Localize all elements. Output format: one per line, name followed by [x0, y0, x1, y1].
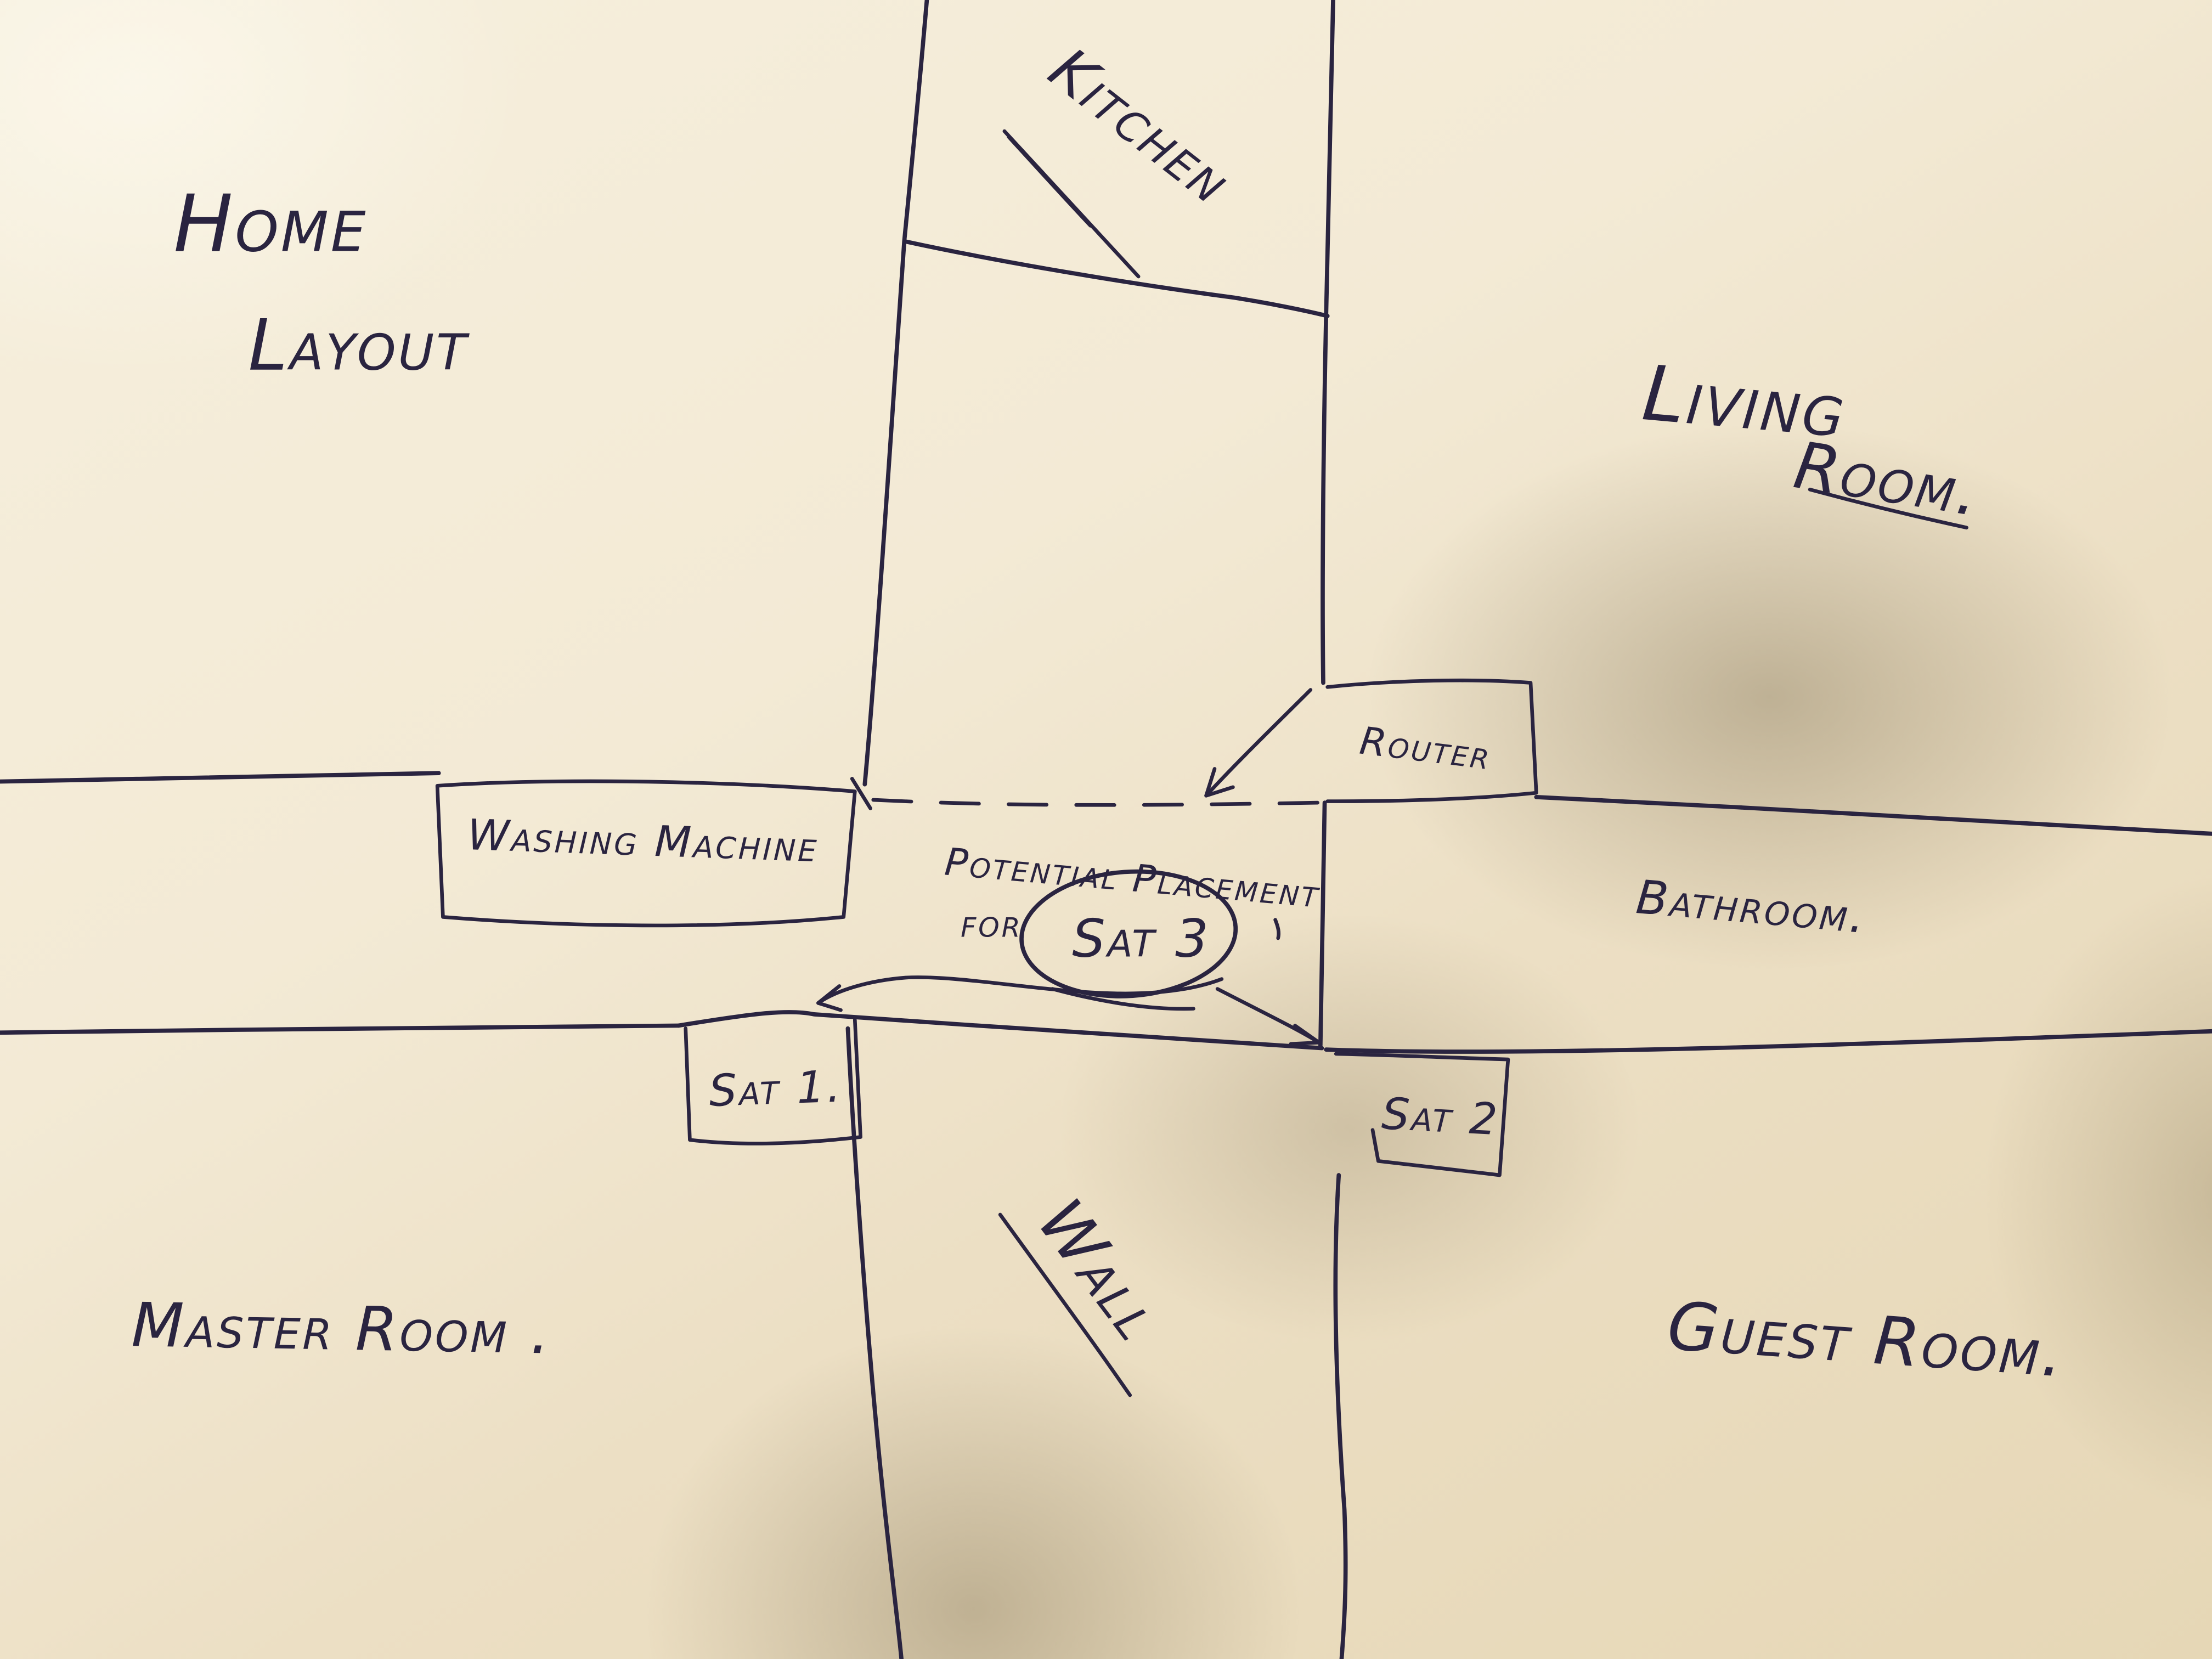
wall-right-middle: [1321, 803, 1325, 1045]
wall-right-lower: [1335, 1175, 1345, 1659]
floor-plan-sketch: Home Layout Kitchen Living Room. Router …: [0, 0, 2212, 1659]
stray-pen-mark: [1276, 920, 1279, 938]
label-sat3: Sat 3: [1072, 909, 1210, 969]
title-layout: Layout: [249, 305, 470, 387]
dashed-partition-line: [873, 800, 1318, 805]
title-home: Home: [173, 178, 368, 270]
paper-photo-background: Home Layout Kitchen Living Room. Router …: [0, 0, 2212, 1659]
wall-right-upper: [1323, 0, 1333, 683]
label-router: Router: [1357, 719, 1494, 779]
kitchen-underline-second-stroke: [1009, 137, 1091, 225]
label-kitchen: Kitchen: [1036, 35, 1244, 218]
arrow-router-to-dashed-wall: [1206, 690, 1311, 795]
wall-left-lower: [848, 1029, 901, 1659]
hallway-top-right-line: [1536, 797, 2212, 834]
wall-kitchen-left: [865, 0, 927, 785]
label-wall: Wall: [1023, 1186, 1177, 1355]
label-master-room: Master Room .: [131, 1290, 552, 1368]
label-living-room-line2: Room.: [1789, 427, 1986, 531]
hallway-top-left-line: [0, 773, 439, 781]
label-washing-machine: Washing Machine: [466, 810, 820, 872]
annotation-for: for: [961, 902, 1022, 946]
arrow-sat3-to-sat2: [1217, 989, 1319, 1044]
label-bathroom: Bathroom.: [1634, 870, 1869, 944]
hallway-bottom-middle-line: [679, 1012, 1322, 1048]
label-sat1: Sat 1.: [708, 1061, 844, 1116]
label-sat2: Sat 2: [1380, 1088, 1500, 1145]
label-guest-room: Guest Room.: [1665, 1288, 2068, 1392]
hallway-bottom-right-line: [1326, 1031, 2212, 1052]
hallway-bottom-left-line: [0, 1025, 679, 1032]
arrow-sat3-to-sat1: [818, 977, 1221, 1010]
